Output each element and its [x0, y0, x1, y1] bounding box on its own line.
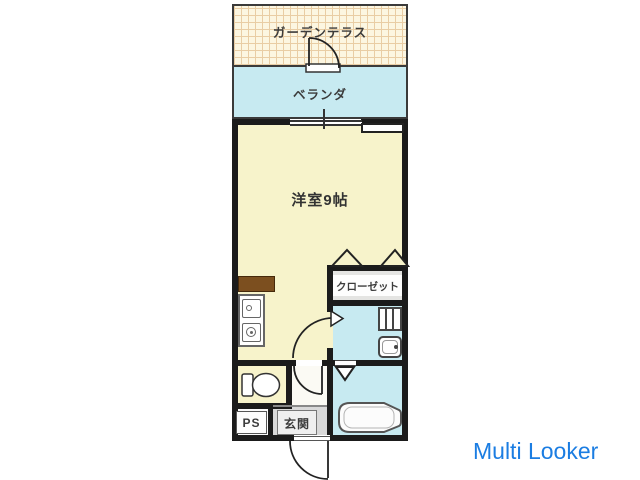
hall-door-swing-icon: [294, 366, 322, 394]
entrance-label: 玄関: [277, 415, 317, 432]
toilet-icon: [242, 374, 280, 397]
plan-symbols-layer: [0, 0, 640, 480]
closet-folding-doors-icon: [332, 250, 408, 266]
bathroom-folding-door-icon: [336, 367, 354, 380]
main-room-label: 洋室9帖: [238, 189, 402, 210]
entrance-door-swing-icon: [290, 441, 328, 479]
closet-label: クローゼット: [333, 279, 402, 294]
ps-label: PS: [236, 416, 267, 430]
bathtub-icon: [339, 403, 401, 432]
watermark: Multi Looker: [473, 438, 633, 465]
washroom-door-swing-icon: [293, 311, 343, 358]
floorplan-image: ガーデンテラス ベランダ: [0, 0, 640, 480]
terrace-door-swing-icon: [306, 38, 340, 72]
